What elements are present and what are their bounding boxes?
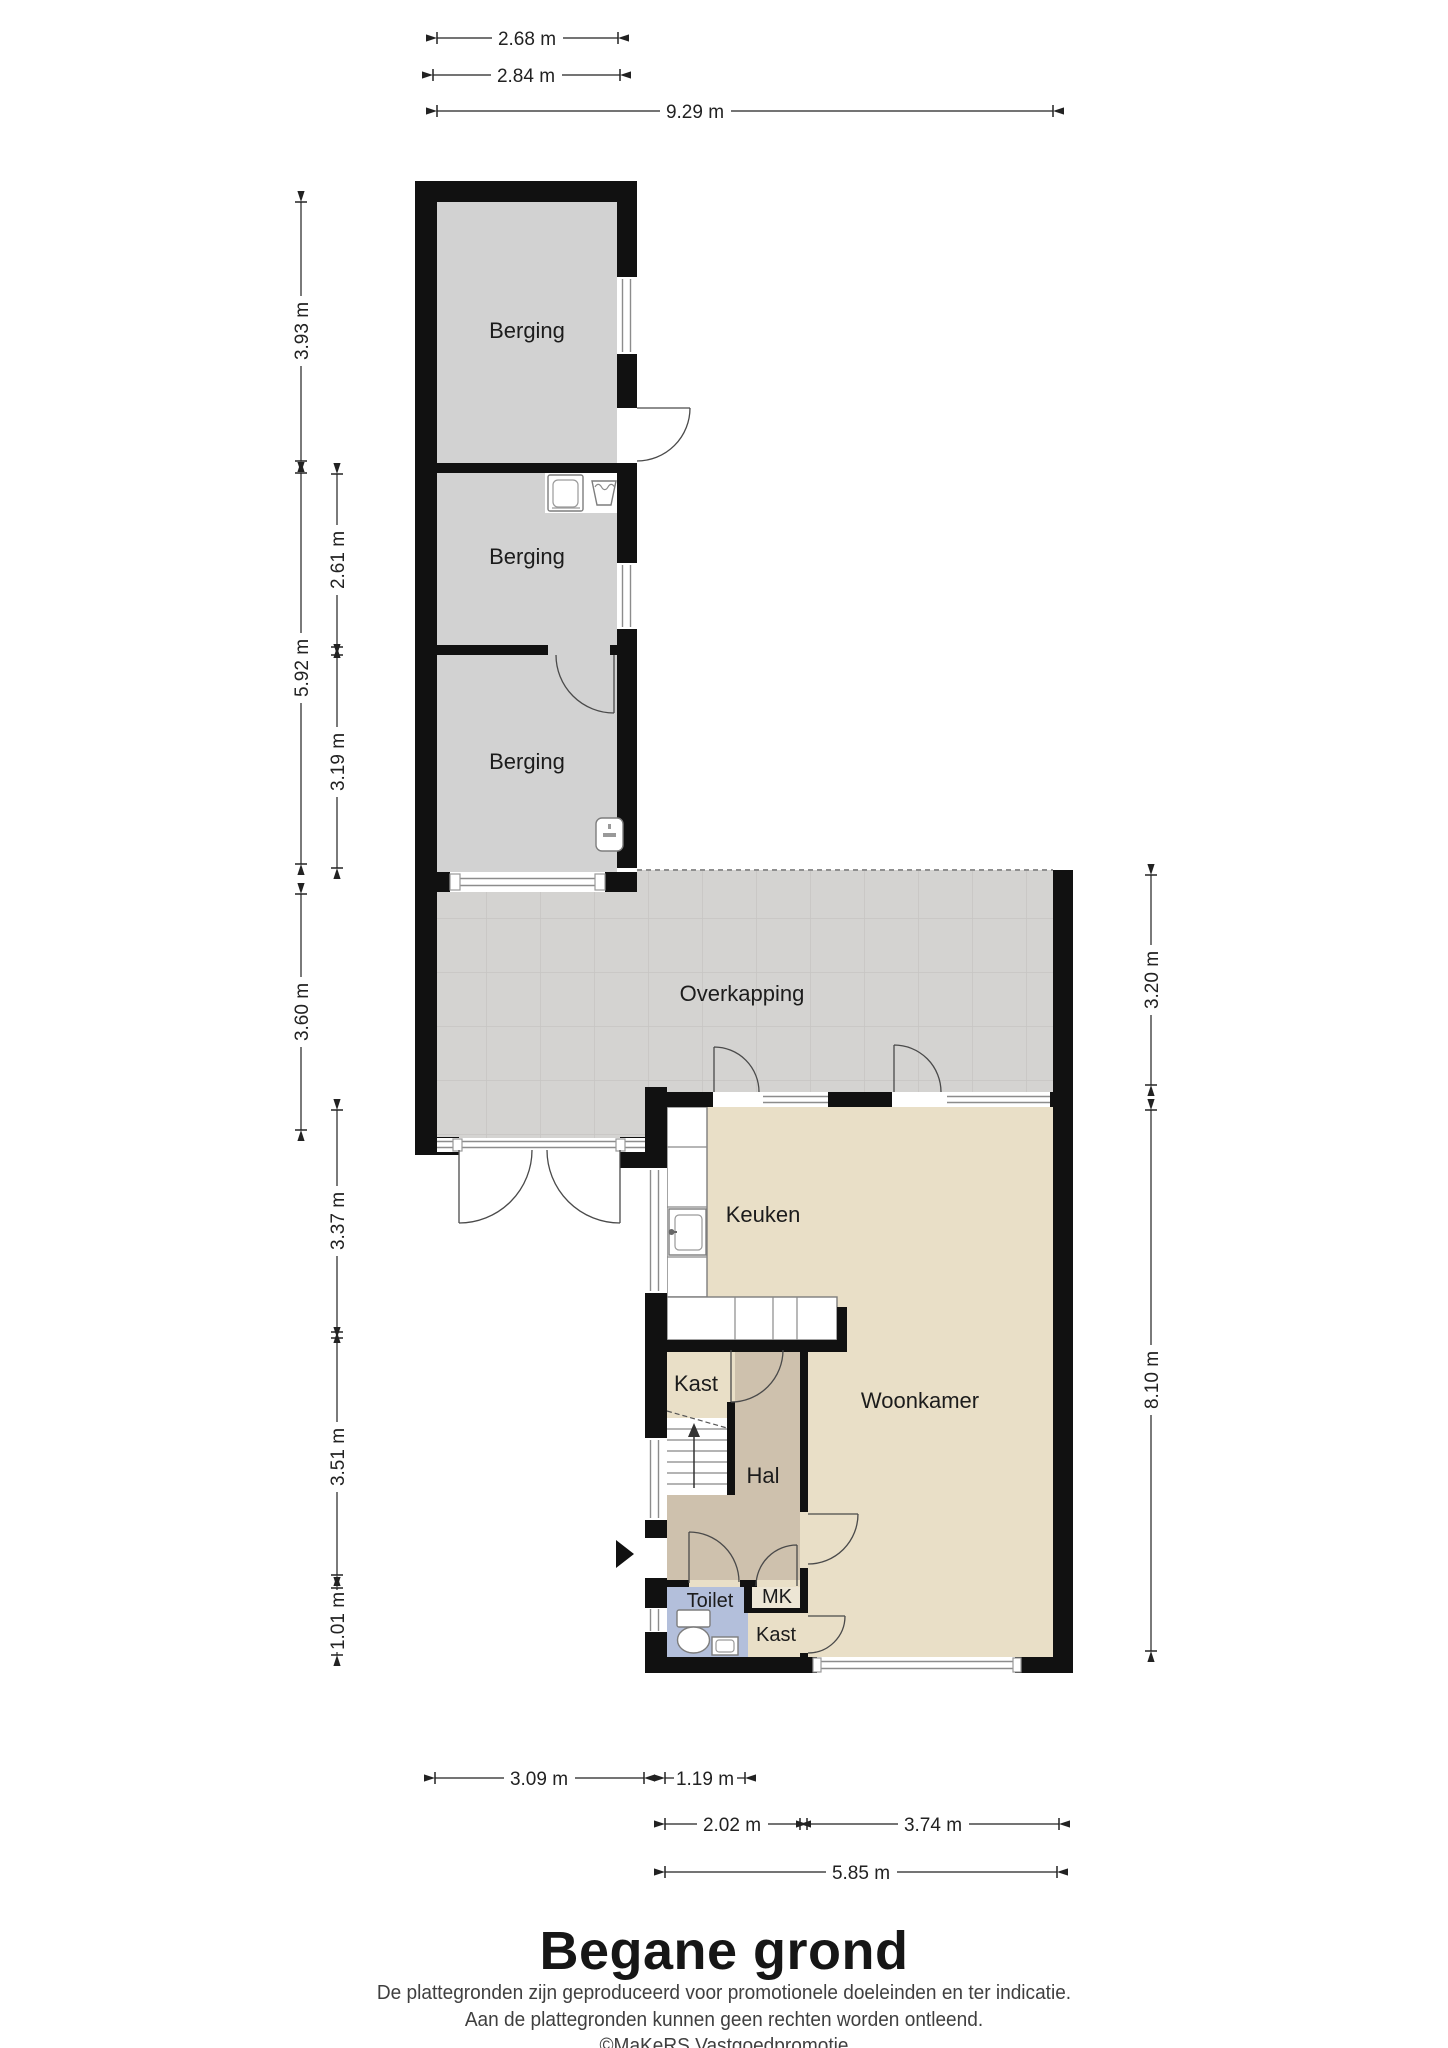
svg-text:3.09 m: 3.09 m — [510, 1769, 568, 1790]
sink-icon — [669, 1209, 707, 1255]
wall-top-keuken-a — [645, 1092, 713, 1107]
woonkamer-label: Woonkamer — [861, 1388, 979, 1413]
dim-bottom-hal: 2.02 m — [665, 1813, 800, 1836]
overkapping-double-door-left — [459, 1150, 532, 1223]
wall-keuken-left-2 — [645, 1293, 667, 1438]
wall-bottom-r — [1015, 1657, 1073, 1673]
wall-kast-top — [645, 1340, 847, 1352]
wall-hal-bottom-a — [667, 1580, 689, 1587]
kast-onder-label: Kast — [756, 1624, 796, 1646]
dim-mid-toilet: 1.01 m — [327, 1588, 349, 1655]
floorplan-drawing: 2.68 m 2.84 m 9.29 m 3.93 m 5.92 m 3.60 … — [0, 0, 1448, 2048]
window-hal-left — [645, 1438, 667, 1520]
wall-top-keuken-b — [828, 1092, 892, 1107]
svg-text:1.19 m: 1.19 m — [676, 1769, 734, 1790]
mk-label: MK — [762, 1586, 793, 1608]
wall-berging-2-3b — [610, 645, 637, 655]
dim-bottom-toilet: 1.19 m — [665, 1768, 745, 1790]
svg-text:2.61 m: 2.61 m — [328, 531, 349, 589]
washing-machine-icon — [548, 475, 583, 511]
dim-mid-hal: 3.51 m — [326, 1338, 349, 1575]
wall-left-4 — [645, 1578, 667, 1608]
dim-right-woonkamer: 8.10 m — [1140, 1110, 1163, 1651]
dim-left-overkapping: 3.60 m — [290, 894, 313, 1130]
wall-right-outer — [1053, 870, 1073, 1673]
dim-mid-berging3: 3.19 m — [326, 655, 349, 868]
svg-text:3.74 m: 3.74 m — [904, 1815, 962, 1836]
svg-text:3.60 m: 3.60 m — [292, 983, 313, 1041]
window-keuken-left — [645, 1168, 667, 1293]
wall-bottom-l — [645, 1657, 817, 1673]
counter-left-strip — [667, 1107, 707, 1297]
hal-label: Hal — [746, 1463, 779, 1488]
svg-text:2.84 m: 2.84 m — [497, 66, 555, 87]
counter-bottom-strip — [667, 1297, 837, 1340]
svg-text:9.29 m: 9.29 m — [666, 102, 724, 123]
window-woonkamer-top — [892, 1092, 1050, 1107]
toilet-icon — [677, 1610, 710, 1653]
window-berging2-right — [617, 563, 637, 629]
page-title: Begane grond — [0, 1920, 1448, 1982]
svg-text:3.20 m: 3.20 m — [1142, 951, 1163, 1009]
overkapping-floor-left — [437, 892, 645, 1138]
dim-bottom-woonkamer: 3.74 m — [807, 1813, 1059, 1836]
wall-hal-woonkamer-1 — [800, 1352, 808, 1512]
window-keuken-top — [713, 1092, 828, 1107]
svg-text:5.85 m: 5.85 m — [832, 1863, 890, 1884]
dim-top-inner: 2.68 m — [437, 27, 618, 50]
berging1-label: Berging — [489, 318, 565, 343]
dim-left-berging23: 5.92 m — [290, 473, 313, 864]
hand-basin-icon — [712, 1637, 738, 1655]
wall-berging-top — [415, 181, 637, 202]
svg-text:5.92 m: 5.92 m — [292, 639, 313, 697]
dim-bottom-total: 5.85 m — [665, 1861, 1057, 1884]
window-berging3-bottom — [450, 872, 605, 892]
wall-berging-right-3 — [617, 465, 637, 563]
disclaimer-line-1: De plattegronden zijn geproduceerd voor … — [51, 1981, 1398, 2005]
dim-top-total: 9.29 m — [437, 100, 1053, 123]
dim-mid-keuken: 3.37 m — [326, 1110, 349, 1332]
wall-hal-woonkamer-2 — [800, 1568, 808, 1613]
credit-line: ©MaKeRS Vastgoedpromotie — [51, 2034, 1398, 2048]
wall-left-outer — [415, 181, 437, 1155]
berging2-label: Berging — [489, 544, 565, 569]
svg-text:2.68 m: 2.68 m — [498, 29, 556, 50]
kast-boven-label: Kast — [674, 1371, 718, 1396]
wall-left-3 — [645, 1520, 667, 1538]
dim-mid-berging2: 2.61 m — [326, 474, 349, 647]
wall-hal-woonkamer-3 — [800, 1653, 808, 1661]
wall-berging-right-1 — [617, 181, 637, 277]
laundry-tub-icon — [592, 481, 616, 505]
entrance-arrow-icon — [616, 1540, 634, 1568]
wall-berging-1-2 — [415, 463, 637, 473]
wall-berging-bottom-l — [415, 872, 450, 892]
svg-text:3.51 m: 3.51 m — [328, 1428, 349, 1486]
dim-right-overkapping: 3.20 m — [1140, 875, 1163, 1085]
window-toilet-left — [645, 1608, 667, 1632]
wall-berging-bottom-r — [605, 872, 637, 892]
window-overkapping-sill — [437, 1138, 645, 1152]
svg-text:3.93 m: 3.93 m — [292, 302, 313, 360]
wall-berging-2-3a — [415, 645, 548, 655]
dim-top-outer: 2.84 m — [433, 64, 620, 87]
toilet-label: Toilet — [687, 1590, 734, 1612]
overkapping-double-door-right — [547, 1150, 620, 1223]
svg-text:8.10 m: 8.10 m — [1142, 1351, 1163, 1409]
berging3-label: Berging — [489, 749, 565, 774]
dim-left-berging1: 3.93 m — [290, 202, 313, 461]
wall-stairs — [727, 1402, 735, 1495]
wall-berging-right-2 — [617, 354, 637, 408]
window-berging1-right — [617, 277, 637, 354]
dim-bottom-berging: 3.09 m — [435, 1767, 644, 1790]
floorplan-page: 2.68 m 2.84 m 9.29 m 3.93 m 5.92 m 3.60 … — [0, 0, 1448, 2048]
svg-text:2.02 m: 2.02 m — [703, 1815, 761, 1836]
disclaimer-line-2: Aan de plattegronden kunnen geen rechten… — [51, 2008, 1398, 2032]
boiler-icon — [596, 818, 623, 851]
svg-text:3.37 m: 3.37 m — [328, 1192, 349, 1250]
svg-text:1.01 m: 1.01 m — [328, 1592, 349, 1650]
svg-text:3.19 m: 3.19 m — [328, 733, 349, 791]
wall-mk-kast — [744, 1608, 808, 1613]
window-woonkamer-bottom — [813, 1657, 1021, 1673]
keuken-label: Keuken — [726, 1202, 801, 1227]
berging1-exterior-door — [637, 408, 690, 461]
floors — [437, 202, 1053, 1657]
wall-hal-bottom-c — [800, 1580, 808, 1587]
overkapping-label: Overkapping — [680, 981, 805, 1006]
